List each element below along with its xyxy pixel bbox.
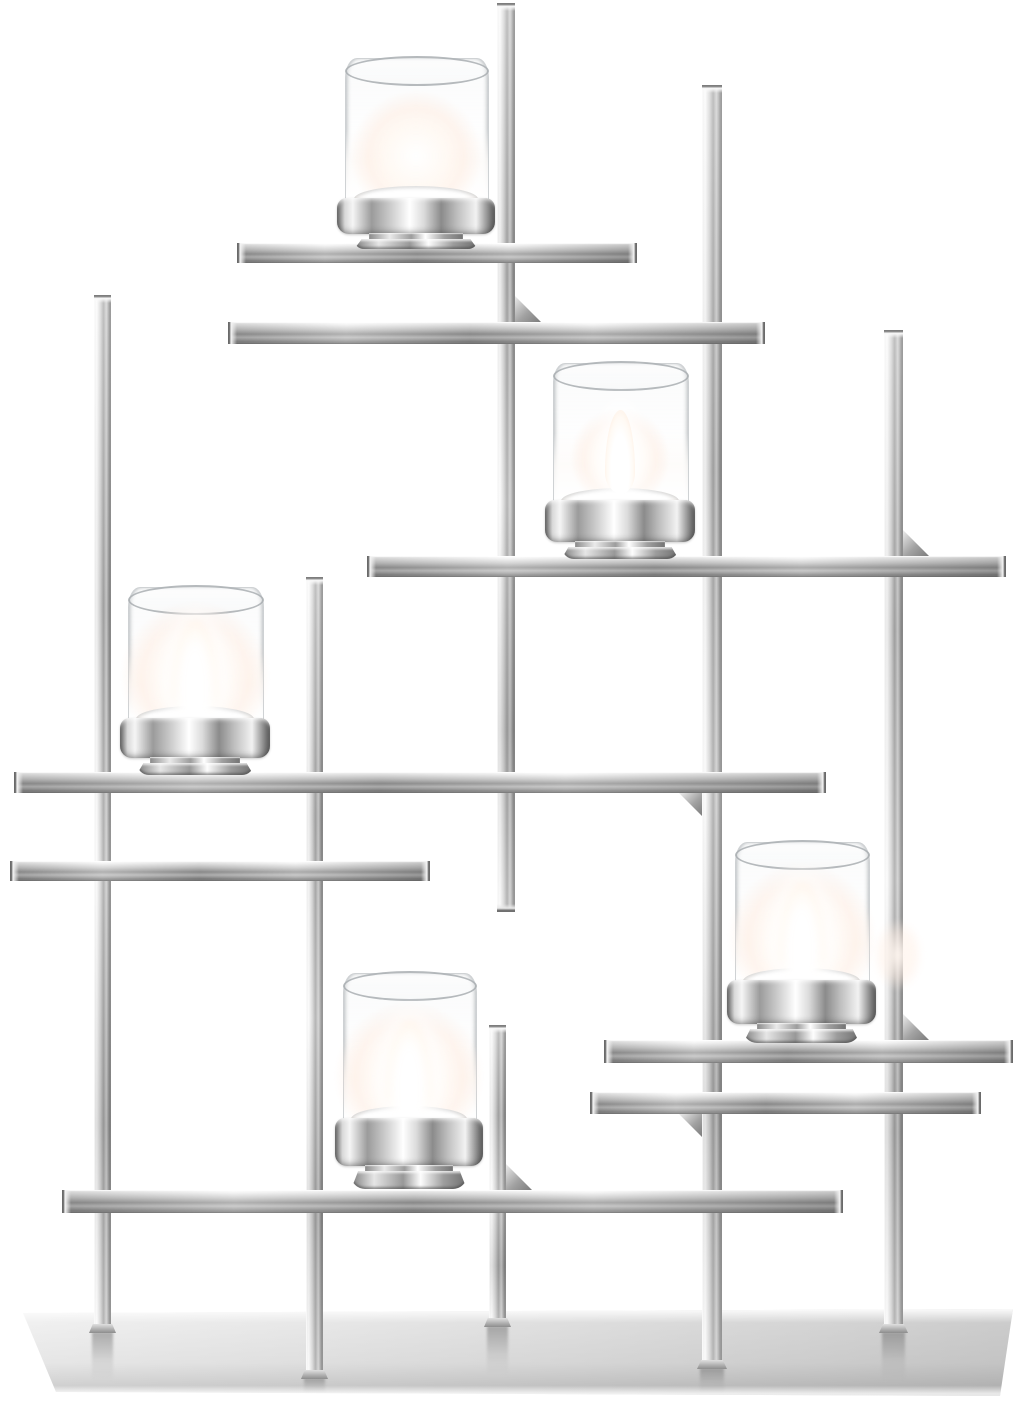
horizontal-bar-right-end	[628, 243, 637, 263]
vertical-bar-foot-post-right	[879, 1324, 908, 1333]
bracket-1	[515, 296, 541, 322]
candle-upper-right-holder-base	[562, 547, 679, 559]
plate-reflection-post-right	[882, 1332, 905, 1380]
candle-bottom-glass-rim	[343, 971, 477, 1001]
vertical-bar-post-right-inner	[702, 85, 722, 1368]
vertical-bar-foot-post-right-inner	[697, 1360, 727, 1369]
horizontal-bar-left-end	[228, 322, 237, 344]
candle-bottom	[335, 973, 483, 1194]
vertical-bar-post-left	[94, 295, 111, 1332]
vertical-bar-top-cap	[884, 330, 903, 338]
horizontal-bar-left-end	[367, 556, 376, 577]
vertical-bar-top-cap	[702, 85, 722, 93]
vertical-bar-top-cap	[497, 3, 515, 11]
bracket-4	[903, 1014, 929, 1040]
horizontal-bar-left-end	[604, 1040, 613, 1063]
flame-glint-on-post	[872, 918, 924, 992]
horizontal-bar-left-end	[590, 1092, 599, 1114]
vertical-bar-post-right	[884, 330, 903, 1332]
candle-upper-right-glass-rim	[553, 361, 689, 391]
candle-upper-right	[545, 363, 695, 564]
candle-top	[337, 58, 495, 254]
horizontal-bar-left-end	[237, 243, 246, 263]
vertical-bar-top-cap	[489, 1025, 506, 1033]
base-plate	[23, 1309, 1016, 1396]
vertical-bar-bottom-cap	[497, 904, 515, 912]
vertical-bar-foot-post-center-lower	[484, 1318, 511, 1327]
candle-right	[727, 842, 876, 1048]
horizontal-bar-left-end	[10, 861, 19, 881]
bracket-5	[679, 1114, 702, 1137]
horizontal-bar-right-end	[834, 1190, 843, 1213]
vertical-bar-foot-post-left-inner	[301, 1370, 328, 1379]
candle-left	[120, 587, 270, 780]
vertical-bar-post-center-lower	[489, 1025, 506, 1326]
candle-top-glass-rim	[345, 56, 489, 86]
plate-reflection-post-left	[92, 1332, 113, 1380]
candle-top-holder-ring	[337, 198, 495, 234]
vertical-bar-top-cap	[306, 577, 323, 585]
candle-bottom-holder-base	[351, 1171, 466, 1189]
horizontal-bar-right-end	[1004, 1040, 1013, 1063]
candle-right-holder-base	[743, 1029, 859, 1043]
horizontal-bar-rail-lower-right	[590, 1092, 981, 1114]
horizontal-bar-rail-left	[10, 861, 430, 881]
bracket-3	[679, 793, 702, 816]
candle-bottom-holder-ring	[335, 1118, 483, 1166]
bracket-6	[506, 1164, 532, 1190]
horizontal-bar-right-end	[997, 556, 1006, 577]
product-photo-stage	[0, 0, 1023, 1402]
bracket-2	[903, 530, 929, 556]
candle-left-holder-ring	[120, 718, 270, 758]
vertical-bar-top-cap	[94, 295, 111, 303]
horizontal-bar-right-end	[817, 772, 826, 793]
candle-upper-right-holder-ring	[545, 500, 695, 542]
candle-right-holder-ring	[727, 980, 876, 1024]
horizontal-bar-rail-upper	[228, 322, 765, 344]
horizontal-bar-left-end	[14, 772, 23, 793]
vertical-bar-foot-post-left	[89, 1324, 116, 1333]
candle-left-holder-base	[137, 763, 254, 775]
horizontal-bar-right-end	[421, 861, 430, 881]
plate-reflection-post-right-inner	[700, 1368, 724, 1392]
plate-reflection-post-left-inner	[304, 1378, 325, 1392]
plate-reflection-post-center-lower	[487, 1326, 508, 1374]
horizontal-bar-right-end	[756, 322, 765, 344]
horizontal-bar-left-end	[62, 1190, 71, 1213]
candle-top-holder-base	[354, 239, 477, 249]
horizontal-bar-right-end	[972, 1092, 981, 1114]
vertical-bar-post-left-inner	[306, 577, 323, 1378]
